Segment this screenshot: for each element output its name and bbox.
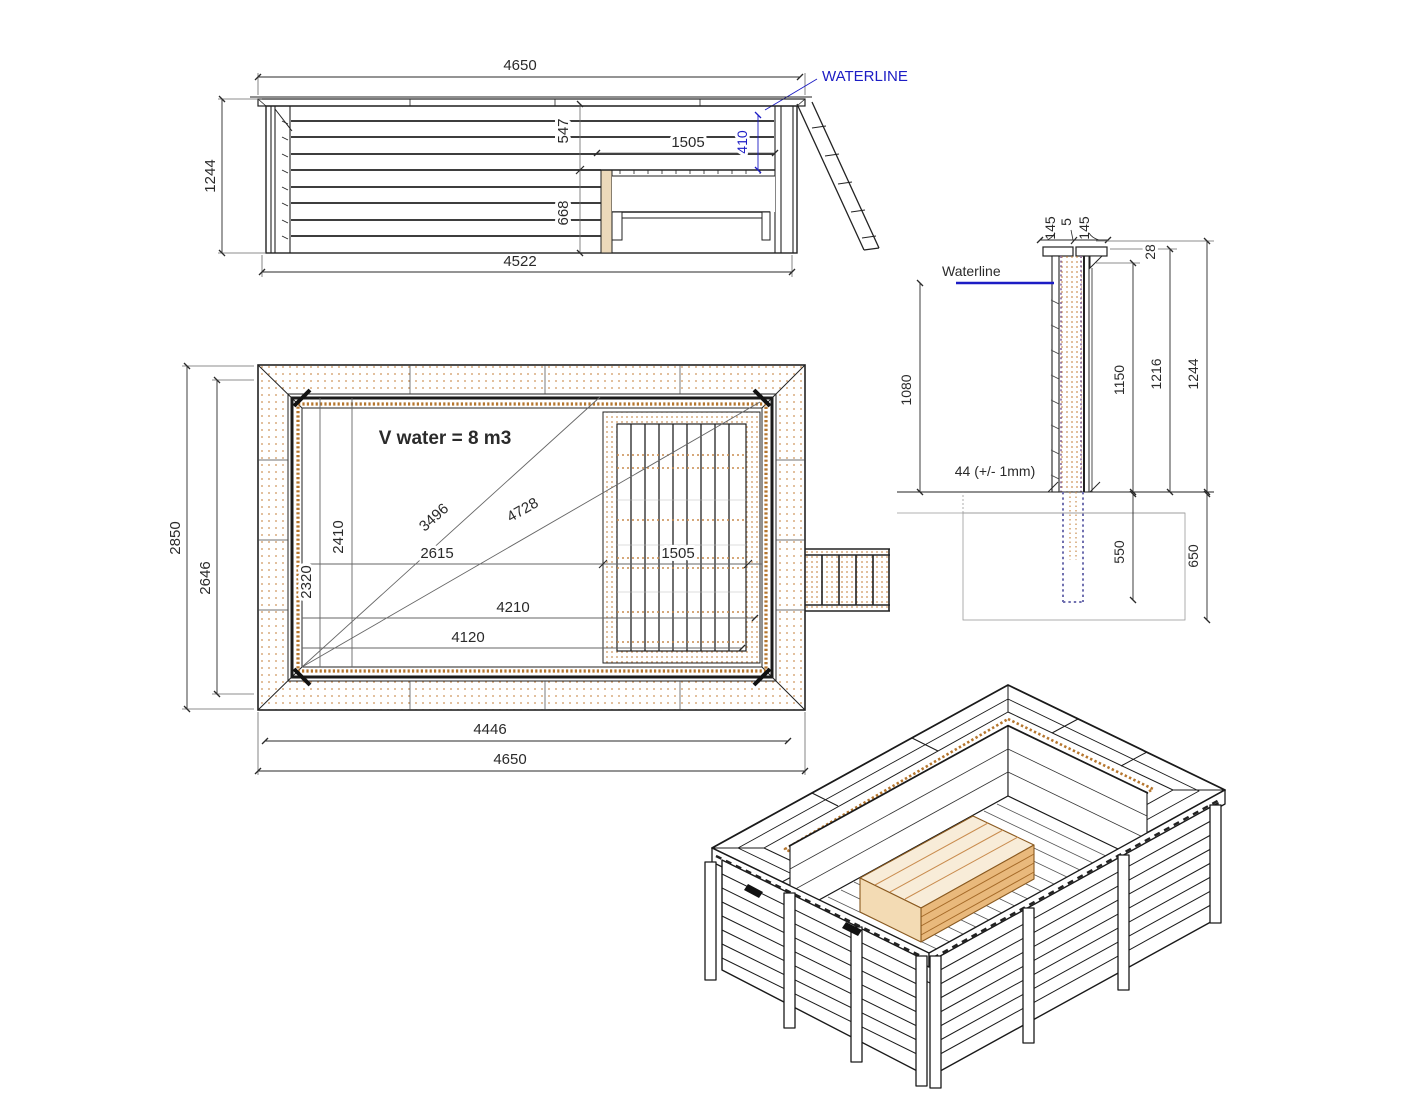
dim-label-4650-bottom: 4650 (493, 751, 526, 768)
side-right-post (775, 106, 793, 253)
section-dim-water-depth: 1080 (898, 283, 920, 492)
dim-label-2320: 2320 (298, 565, 315, 598)
dim-label-2615: 2615 (420, 545, 453, 562)
dim-label-1244-side: 1244 (202, 159, 219, 192)
plan-ladder (805, 549, 890, 611)
dim-label-4446: 4446 (473, 721, 506, 738)
dim-label-1216: 1216 (1148, 358, 1164, 389)
pool-technical-drawing-sheet: 4650 WATERLINE (0, 0, 1422, 1100)
dim-label-1244-section: 1244 (1185, 358, 1201, 389)
dim-label-5: 5 (1058, 218, 1074, 226)
dim-label-1080: 1080 (898, 374, 914, 405)
dim-label-44: 44 (+/- 1mm) (955, 463, 1036, 479)
dim-label-4210: 4210 (496, 599, 529, 616)
side-waterline-callout: WATERLINE (765, 68, 908, 110)
side-dim-water-depth: 410 (734, 115, 758, 170)
dim-label-550: 550 (1111, 540, 1127, 564)
dim-label-2410: 2410 (330, 520, 347, 553)
dim-label-2646: 2646 (197, 561, 214, 594)
dim-label-2850: 2850 (167, 521, 184, 554)
section-waterline-label: Waterline (942, 263, 1001, 279)
dim-label-668: 668 (555, 200, 572, 225)
side-dim-height: 1244 (202, 99, 266, 253)
dim-label-650: 650 (1185, 544, 1201, 568)
side-dim-bottom-width: 4522 (262, 253, 792, 277)
waterline-label: WATERLINE (822, 68, 908, 85)
dim-label-4120: 4120 (451, 629, 484, 646)
dim-label-547: 547 (555, 118, 572, 143)
dim-label-410: 410 (734, 130, 750, 154)
section-dim-plank: 44 (+/- 1mm) (955, 463, 1036, 479)
plan-view: V water = 8 m3 2320 2410 3496 4728 2615 … (167, 365, 890, 775)
isometric-view (705, 685, 1225, 1088)
dim-label-4650-top: 4650 (503, 57, 536, 74)
dim-label-145-b: 145 (1076, 216, 1092, 240)
section-dims-right: 28 1150 1216 1244 (1096, 241, 1214, 492)
side-elevation-view: 4650 WATERLINE (202, 57, 908, 277)
dim-label-145-a: 145 (1042, 216, 1058, 240)
dim-label-1505-side: 1505 (671, 134, 704, 151)
side-left-post (271, 106, 292, 253)
section-pier (1063, 492, 1083, 602)
section-dim-cap: 145 5 145 (1040, 216, 1108, 244)
wall-section-view: 145 5 145 (897, 216, 1214, 620)
plan-deck (603, 412, 760, 663)
side-bench (601, 170, 775, 253)
section-wall (1048, 256, 1100, 492)
dim-label-1505-plan: 1505 (661, 545, 694, 562)
dim-label-1150: 1150 (1111, 365, 1127, 395)
side-dim-depth-chain: 547 668 (555, 104, 584, 253)
dim-label-28: 28 (1142, 244, 1158, 260)
side-ladder (797, 102, 879, 250)
section-ground (897, 492, 1214, 620)
plan-dim-left: 2850 2646 (167, 366, 254, 709)
drawing-canvas: 4650 WATERLINE (0, 0, 1422, 1100)
dim-label-4522: 4522 (503, 253, 536, 270)
plan-dim-bottom: 4446 4650 (258, 712, 805, 775)
side-dim-top-width: 4650 (258, 57, 805, 95)
volume-label: V water = 8 m3 (379, 428, 512, 449)
section-waterline: Waterline (942, 263, 1054, 283)
